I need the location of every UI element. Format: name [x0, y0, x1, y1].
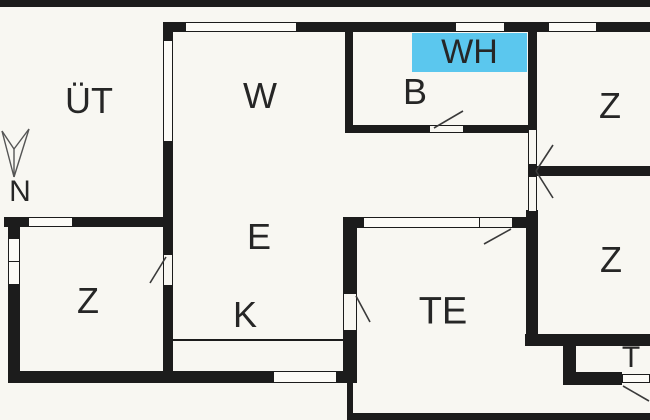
room-label-z-left: Z — [77, 280, 99, 322]
door-swing-overlay — [0, 0, 650, 420]
kitchen-divider-line — [172, 339, 343, 341]
room-label-b: B — [403, 71, 427, 113]
floor-plan: N ÜT W B WH Z Z E K TE Z T — [0, 0, 650, 420]
window-te-top — [363, 217, 480, 228]
north-label: N — [9, 175, 31, 209]
door-opening-z-bottom-right — [528, 177, 537, 211]
wall-te-right — [526, 210, 538, 346]
wall-corridor-upper — [528, 30, 537, 130]
room-label-e: E — [247, 216, 271, 258]
room-label-te: TE — [419, 291, 468, 334]
room-highlight-wh[interactable]: WH — [412, 33, 527, 72]
window-z-left — [8, 238, 20, 285]
room-label-t: T — [622, 341, 640, 375]
room-label-z-top-right: Z — [599, 85, 621, 127]
door-opening-b — [430, 125, 463, 133]
room-label-k: K — [233, 294, 257, 336]
room-label-wh: WH — [441, 33, 498, 72]
wall-te-left-lower — [347, 383, 353, 415]
wall-z-right-divider — [530, 166, 650, 176]
door-opening-z-top-right — [528, 130, 537, 164]
window-k-bottom — [273, 371, 337, 383]
room-label-w: W — [243, 75, 277, 117]
wall-b-left — [345, 30, 353, 133]
window-top-2 — [455, 22, 505, 32]
window-w-left — [163, 40, 173, 142]
door-opening-te-left — [343, 294, 357, 330]
window-top-3 — [548, 22, 597, 32]
wall-t-bottom — [563, 372, 622, 385]
wall-te-bottom — [347, 413, 650, 420]
door-sill-t — [622, 374, 650, 383]
room-label-ut: ÜT — [65, 80, 113, 122]
room-label-z-bottom-right: Z — [600, 239, 622, 281]
door-opening-te-top — [480, 217, 512, 228]
window-top-1 — [185, 22, 297, 32]
window-ut-z — [28, 217, 73, 227]
door-opening-z-left — [163, 255, 173, 285]
top-border-wall — [0, 0, 650, 7]
